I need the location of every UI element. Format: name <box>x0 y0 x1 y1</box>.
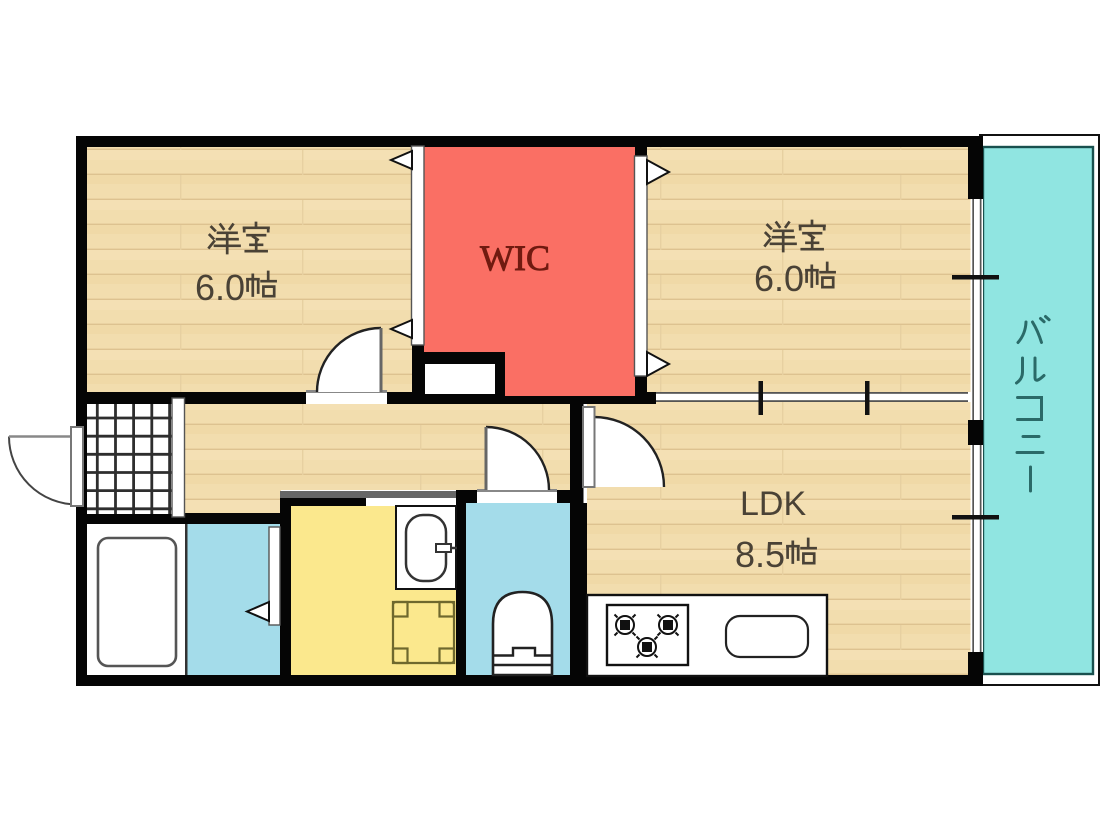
svg-text:6.0: 6.0 <box>195 267 245 308</box>
svg-text:LDK: LDK <box>740 485 806 523</box>
svg-text:WIC: WIC <box>480 238 550 278</box>
svg-text:6.0: 6.0 <box>754 258 804 299</box>
svg-text:8.5: 8.5 <box>735 534 785 575</box>
